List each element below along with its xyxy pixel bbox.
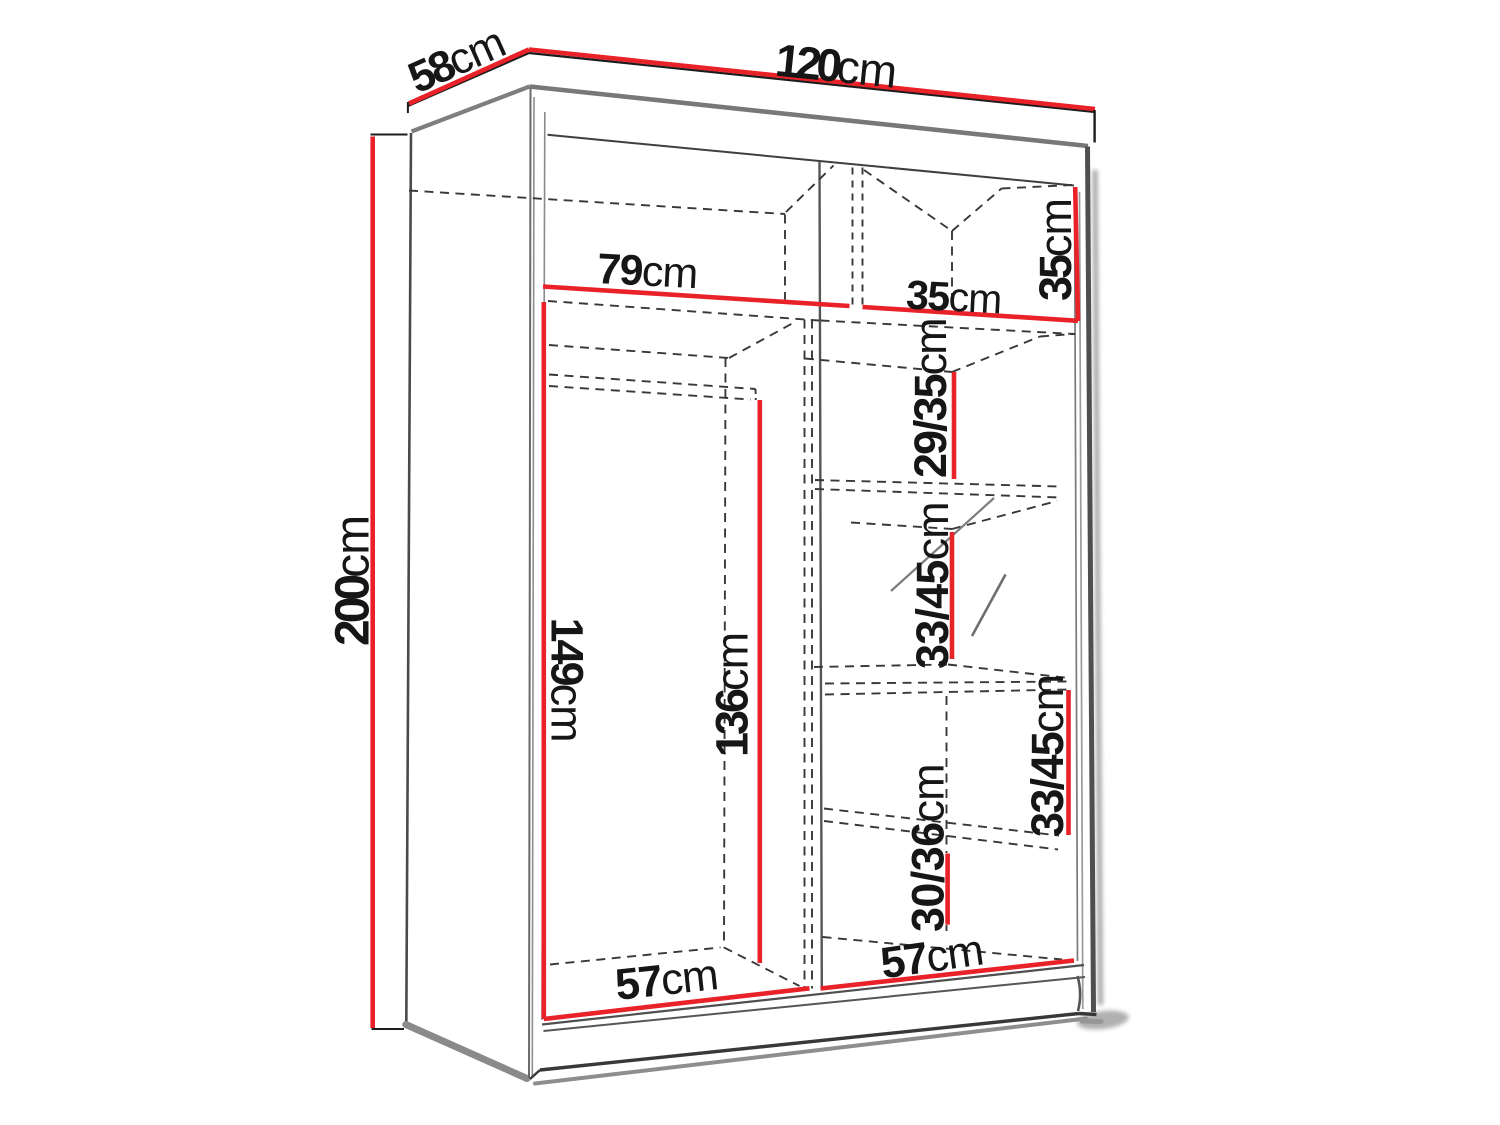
svg-text:30/36cm: 30/36cm: [903, 764, 954, 932]
svg-text:33/45cm: 33/45cm: [1022, 675, 1073, 837]
svg-text:35cm: 35cm: [1030, 199, 1081, 301]
svg-text:35cm: 35cm: [905, 272, 1003, 323]
svg-text:29/35cm: 29/35cm: [905, 319, 956, 478]
svg-text:149cm: 149cm: [542, 618, 593, 742]
svg-text:136cm: 136cm: [707, 633, 758, 757]
svg-text:79cm: 79cm: [596, 245, 699, 298]
svg-text:33/45cm: 33/45cm: [907, 502, 958, 669]
svg-text:200cm: 200cm: [327, 516, 380, 646]
